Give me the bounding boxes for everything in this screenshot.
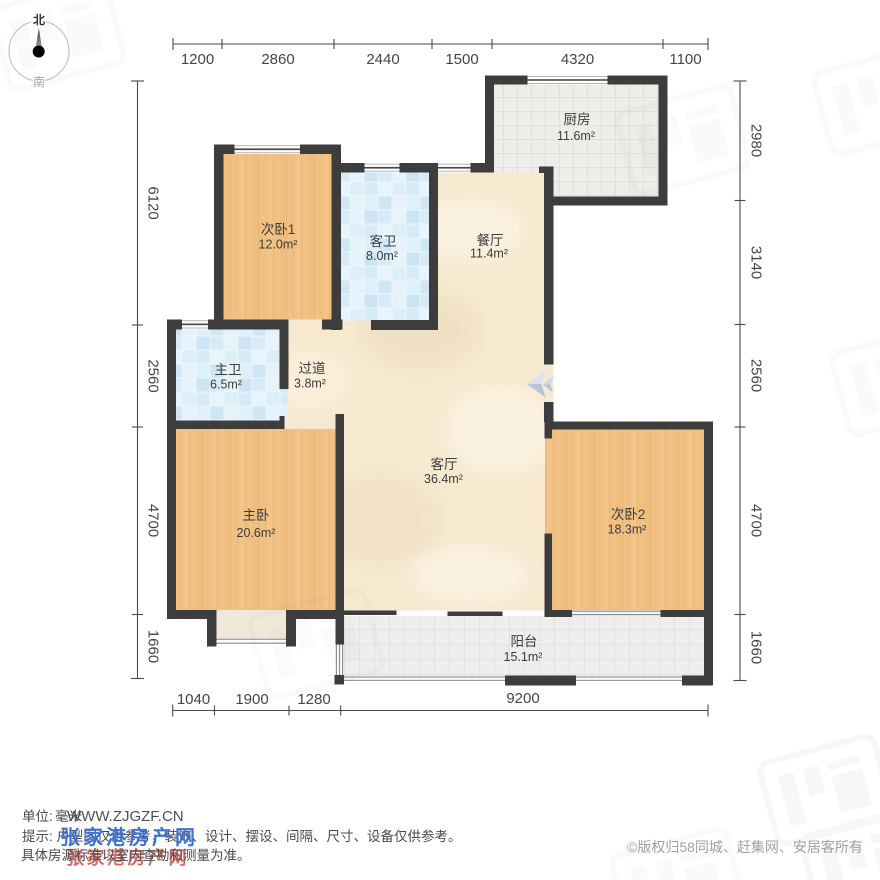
svg-text:6.5m²: 6.5m² — [210, 378, 242, 392]
svg-text:3.8m²: 3.8m² — [294, 377, 326, 391]
svg-text:主卧: 主卧 — [243, 508, 270, 523]
svg-text:厨房: 厨房 — [564, 112, 591, 127]
svg-text:1100: 1100 — [669, 51, 701, 68]
svg-text:2560: 2560 — [748, 359, 765, 392]
svg-text:客厅: 客厅 — [431, 456, 458, 472]
svg-text:客卫: 客卫 — [370, 233, 397, 249]
svg-text:2440: 2440 — [366, 51, 399, 68]
svg-text:2560: 2560 — [145, 359, 162, 392]
svg-text:具体房源标准以室内查勘和测量为准。: 具体房源标准以室内查勘和测量为准。 — [21, 847, 251, 863]
svg-text:张家港房产网: 张家港房产网 — [60, 825, 198, 849]
svg-text:4700: 4700 — [748, 504, 765, 537]
svg-text:1500: 1500 — [445, 51, 478, 68]
svg-text:9200: 9200 — [506, 690, 539, 707]
svg-text:单位:: 单位: — [22, 809, 53, 824]
svg-text:过道: 过道 — [299, 361, 326, 376]
svg-text:1900: 1900 — [235, 691, 268, 708]
svg-text:次卧1: 次卧1 — [261, 222, 296, 237]
svg-text:4320: 4320 — [561, 51, 594, 68]
svg-text:36.4m²: 36.4m² — [424, 472, 463, 486]
svg-text:主卫: 主卫 — [215, 363, 242, 378]
svg-text:11.6m²: 11.6m² — [557, 129, 595, 143]
svg-text:20.6m²: 20.6m² — [237, 526, 276, 540]
svg-text:1040: 1040 — [177, 691, 210, 708]
svg-text:阳台: 阳台 — [511, 634, 538, 649]
svg-text:WWW.ZJGZF.CN: WWW.ZJGZF.CN — [67, 808, 184, 825]
svg-text:6120: 6120 — [145, 186, 162, 219]
svg-text:12.0m²: 12.0m² — [259, 238, 298, 252]
svg-text:1200: 1200 — [181, 51, 214, 68]
svg-text:15.1m²: 15.1m² — [504, 650, 543, 664]
svg-text:2860: 2860 — [261, 51, 294, 68]
svg-text:4700: 4700 — [145, 504, 162, 537]
svg-text:18.3m²: 18.3m² — [608, 523, 647, 537]
svg-text:8.0m²: 8.0m² — [366, 249, 398, 263]
svg-text:次卧2: 次卧2 — [611, 507, 646, 522]
svg-text:3140: 3140 — [748, 246, 765, 279]
svg-text:11.4m²: 11.4m² — [470, 247, 508, 261]
svg-text:1660: 1660 — [748, 631, 765, 664]
svg-text:1280: 1280 — [297, 691, 330, 708]
svg-text:1660: 1660 — [145, 630, 162, 663]
